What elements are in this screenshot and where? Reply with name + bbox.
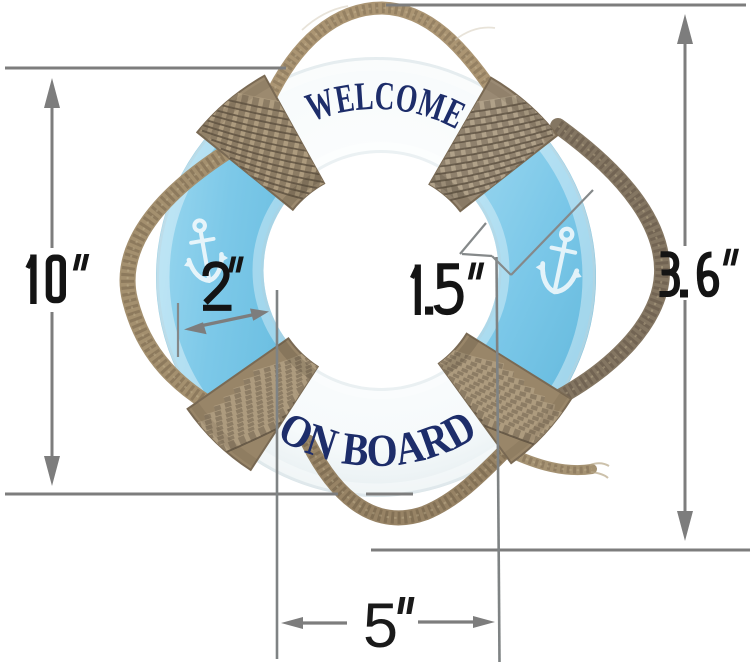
- svg-text:5: 5: [363, 591, 398, 661]
